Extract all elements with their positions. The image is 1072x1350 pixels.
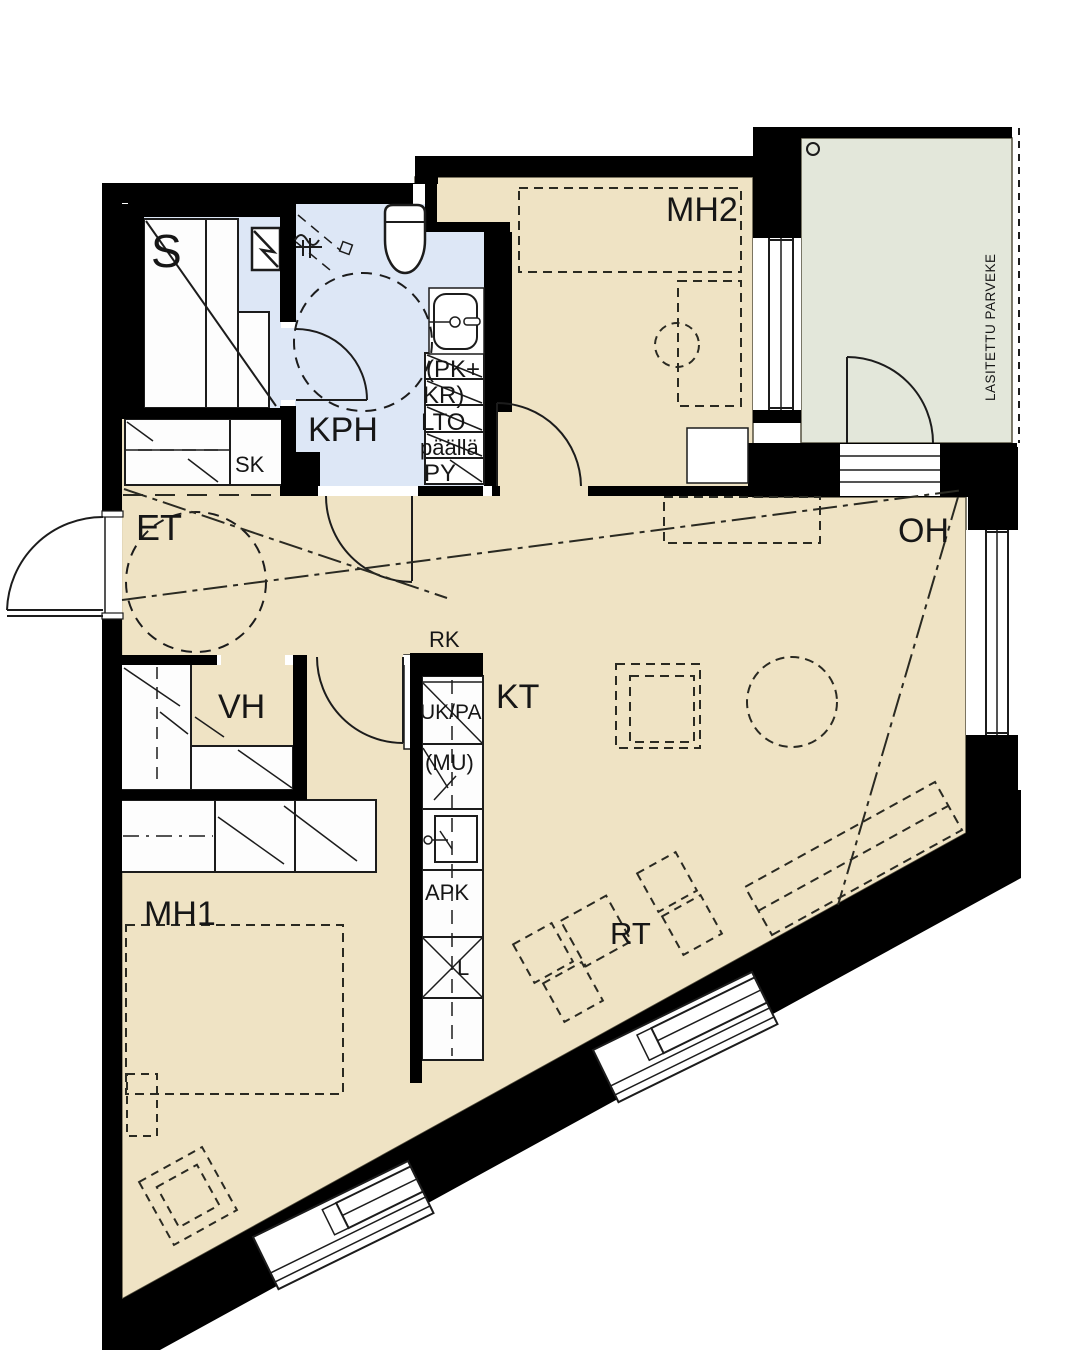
svg-text:L: L xyxy=(457,955,469,980)
svg-text:APK: APK xyxy=(425,880,469,905)
svg-text:LTO: LTO xyxy=(421,409,465,436)
svg-text:VH: VH xyxy=(218,688,265,726)
svg-text:päällä: päällä xyxy=(420,435,479,460)
svg-text:RT: RT xyxy=(610,916,651,951)
svg-text:(MU): (MU) xyxy=(425,750,474,775)
svg-text:KPH: KPH xyxy=(308,411,378,449)
svg-text:KT: KT xyxy=(496,678,539,716)
svg-text:UK/PA: UK/PA xyxy=(420,701,481,724)
svg-text:(PK+: (PK+ xyxy=(426,356,480,383)
svg-text:RK: RK xyxy=(429,627,460,652)
svg-text:MH2: MH2 xyxy=(666,191,738,229)
svg-text:LASITETTU PARVEKE: LASITETTU PARVEKE xyxy=(983,253,998,401)
svg-text:KR): KR) xyxy=(423,382,464,409)
svg-text:OH: OH xyxy=(898,512,949,550)
svg-text:PY: PY xyxy=(424,460,456,487)
svg-text:S: S xyxy=(151,225,182,277)
svg-text:SK: SK xyxy=(235,452,265,477)
svg-text:ET: ET xyxy=(136,507,182,548)
svg-text:MH1: MH1 xyxy=(144,895,216,933)
